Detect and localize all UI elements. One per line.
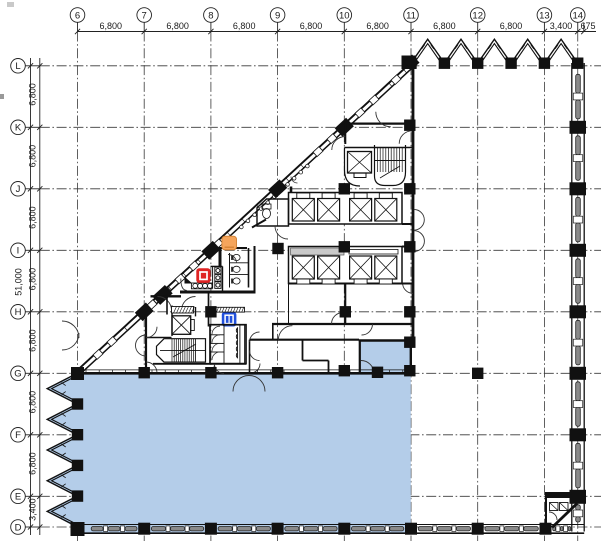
svg-text:675: 675 — [580, 21, 595, 31]
svg-text:H: H — [15, 307, 22, 318]
svg-text:7: 7 — [142, 10, 147, 21]
svg-text:51,000: 51,000 — [14, 268, 24, 296]
svg-text:6,800: 6,800 — [366, 21, 389, 31]
svg-text:12: 12 — [472, 10, 483, 21]
svg-text:6,800: 6,800 — [28, 268, 38, 291]
svg-text:L: L — [15, 61, 20, 72]
svg-text:10: 10 — [339, 10, 350, 21]
svg-text:6,800: 6,800 — [100, 21, 123, 31]
svg-text:K: K — [15, 123, 22, 134]
svg-text:13: 13 — [539, 10, 550, 21]
svg-text:8: 8 — [208, 10, 213, 21]
svg-text:6,800: 6,800 — [28, 391, 38, 414]
svg-text:J: J — [16, 184, 21, 195]
svg-text:6,800: 6,800 — [300, 21, 323, 31]
svg-text:3,400: 3,400 — [550, 21, 573, 31]
svg-text:6,800: 6,800 — [433, 21, 456, 31]
svg-text:E: E — [15, 492, 21, 503]
svg-text:6,800: 6,800 — [28, 329, 38, 352]
svg-text:6,800: 6,800 — [28, 452, 38, 475]
svg-text:G: G — [14, 369, 21, 380]
svg-text:6,800: 6,800 — [166, 21, 189, 31]
svg-text:14: 14 — [572, 10, 583, 21]
svg-text:I: I — [17, 246, 20, 257]
svg-text:D: D — [15, 522, 22, 533]
svg-text:11: 11 — [406, 10, 416, 21]
svg-text:9: 9 — [275, 10, 280, 21]
svg-text:3,400: 3,400 — [28, 498, 38, 521]
svg-text:6,800: 6,800 — [28, 83, 38, 106]
svg-text:6,800: 6,800 — [28, 145, 38, 168]
svg-text:6,800: 6,800 — [28, 206, 38, 229]
svg-text:6,800: 6,800 — [233, 21, 256, 31]
svg-text:6,800: 6,800 — [500, 21, 523, 31]
svg-text:6: 6 — [75, 10, 80, 21]
svg-text:F: F — [15, 430, 21, 441]
